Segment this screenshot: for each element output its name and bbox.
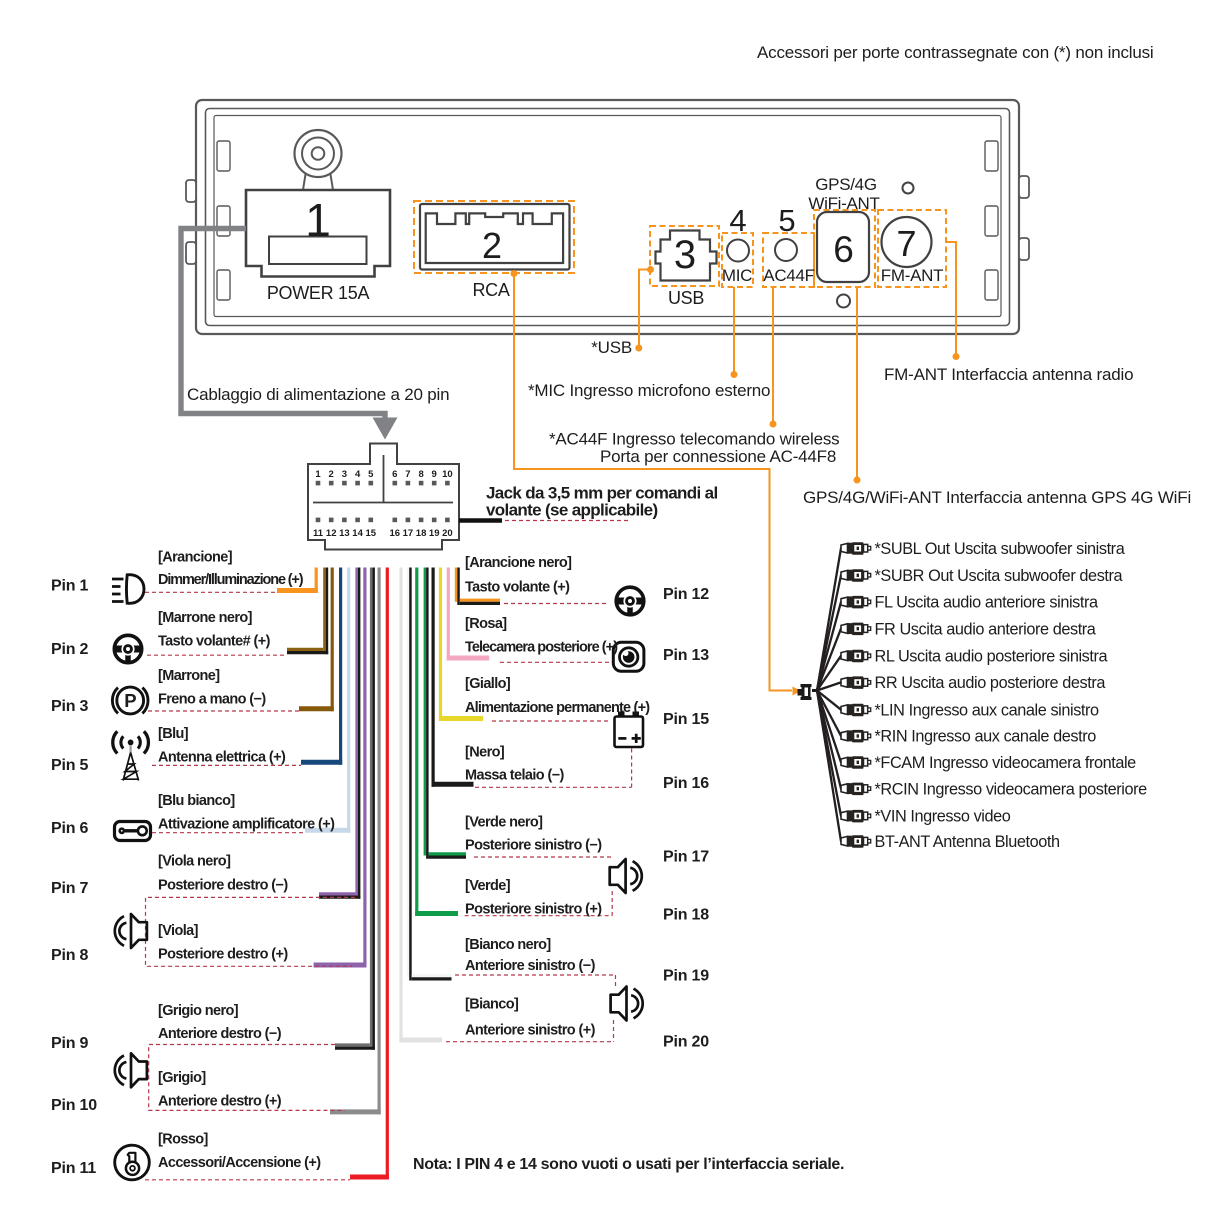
svg-text:[Blu]: [Blu]: [158, 726, 189, 742]
svg-text:14: 14: [352, 528, 363, 539]
svg-text:[Verde]: [Verde]: [465, 878, 511, 894]
svg-text:*RCIN Ingresso videocamera pos: *RCIN Ingresso videocamera posteriore: [875, 780, 1148, 798]
svg-text:12: 12: [326, 528, 337, 539]
svg-text:GPS/4G/WiFi-ANT Interfaccia an: GPS/4G/WiFi-ANT Interfaccia antenna GPS …: [803, 488, 1191, 507]
svg-text:[Arancione nero]: [Arancione nero]: [465, 555, 572, 571]
svg-text:[Grigio nero]: [Grigio nero]: [158, 1003, 239, 1019]
svg-text:Posteriore destro (+): Posteriore destro (+): [158, 947, 288, 963]
svg-text:Pin 1: Pin 1: [51, 578, 89, 595]
svg-text:Alimentazione permanente (+): Alimentazione permanente (+): [465, 700, 650, 716]
svg-text:volante (se applicabile): volante (se applicabile): [486, 501, 657, 520]
svg-text:7: 7: [896, 223, 916, 264]
svg-text:[Blu bianco]: [Blu bianco]: [158, 793, 235, 809]
svg-text:16: 16: [390, 528, 401, 539]
svg-text:Pin 7: Pin 7: [51, 880, 89, 897]
svg-text:BT-ANT Antenna Bluetooth: BT-ANT Antenna Bluetooth: [875, 833, 1060, 851]
svg-text:Tasto volante (+): Tasto volante (+): [465, 580, 570, 596]
svg-text:3: 3: [342, 469, 347, 480]
svg-text:8: 8: [418, 469, 423, 480]
svg-text:*AC44F Ingresso telecomando wi: *AC44F Ingresso telecomando wireless: [549, 430, 839, 449]
svg-text:4: 4: [355, 469, 361, 480]
svg-text:Pin 2: Pin 2: [51, 641, 89, 658]
svg-text:Pin 18: Pin 18: [663, 907, 709, 924]
svg-text:Pin 17: Pin 17: [663, 849, 709, 866]
svg-text:Pin 13: Pin 13: [663, 647, 709, 664]
svg-text:Pin 10: Pin 10: [51, 1097, 97, 1114]
svg-text:20: 20: [442, 528, 453, 539]
svg-text:Dimmer/Illuminazione (+): Dimmer/Illuminazione (+): [158, 572, 304, 588]
svg-text:[Marrone]: [Marrone]: [158, 668, 220, 684]
svg-text:Attivazione amplificatore (+): Attivazione amplificatore (+): [158, 817, 335, 833]
svg-text:*FCAM Ingresso videocamera fro: *FCAM Ingresso videocamera frontale: [875, 754, 1137, 772]
svg-text:*SUBL Out Uscita subwoofer sin: *SUBL Out Uscita subwoofer sinistra: [875, 540, 1126, 558]
svg-text:Anteriore destro (−): Anteriore destro (−): [158, 1026, 282, 1042]
svg-text:Nota: I PIN 4 e 14 sono vuoti: Nota: I PIN 4 e 14 sono vuoti o usati pe…: [413, 1156, 844, 1173]
svg-text:[Rosso]: [Rosso]: [158, 1132, 209, 1148]
svg-text:[Bianco]: [Bianco]: [465, 997, 519, 1013]
svg-text:2: 2: [329, 469, 334, 480]
svg-text:[Arancione]: [Arancione]: [158, 550, 233, 566]
svg-text:[Verde nero]: [Verde nero]: [465, 815, 543, 831]
svg-text:5: 5: [368, 469, 374, 480]
svg-text:6: 6: [833, 229, 854, 270]
svg-text:3: 3: [674, 233, 696, 277]
svg-text:[Bianco nero]: [Bianco nero]: [465, 937, 551, 953]
svg-text:Posteriore destro (−): Posteriore destro (−): [158, 878, 288, 894]
svg-text:MIC: MIC: [722, 266, 752, 285]
svg-text:*VIN Ingresso video: *VIN Ingresso video: [875, 808, 1011, 826]
svg-text:[Grigio]: [Grigio]: [158, 1070, 206, 1086]
svg-text:Anteriore sinistro (−): Anteriore sinistro (−): [465, 958, 596, 974]
svg-text:*LIN Ingresso aux canale sinis: *LIN Ingresso aux canale sinistro: [875, 702, 1100, 720]
svg-text:Pin 6: Pin 6: [51, 820, 89, 837]
svg-text:7: 7: [405, 469, 410, 480]
svg-text:Tasto volante# (+): Tasto volante# (+): [158, 634, 271, 650]
svg-text:RR Uscita audio posteriore des: RR Uscita audio posteriore destra: [875, 674, 1107, 692]
svg-text:9: 9: [432, 469, 437, 480]
svg-text:10: 10: [442, 469, 453, 480]
svg-text:17: 17: [403, 528, 414, 539]
svg-text:*USB: *USB: [591, 338, 632, 357]
svg-text:P: P: [124, 690, 136, 711]
svg-text:FL Uscita audio anteriore sini: FL Uscita audio anteriore sinistra: [875, 594, 1099, 612]
svg-text:Freno a mano (−): Freno a mano (−): [158, 692, 266, 708]
svg-text:Pin 12: Pin 12: [663, 586, 709, 603]
svg-text:USB: USB: [668, 288, 704, 308]
svg-text:1: 1: [315, 469, 321, 480]
svg-text:Pin 5: Pin 5: [51, 757, 89, 774]
svg-text:11: 11: [313, 528, 324, 539]
svg-text:Pin 15: Pin 15: [663, 711, 709, 728]
svg-text:[Viola]: [Viola]: [158, 923, 199, 939]
svg-text:*MIC Ingresso microfono estern: *MIC Ingresso microfono esterno: [528, 381, 770, 400]
svg-text:Antenna elettrica (+): Antenna elettrica (+): [158, 750, 286, 766]
svg-text:2: 2: [482, 225, 502, 266]
svg-text:*SUBR Out Uscita subwoofer des: *SUBR Out Uscita subwoofer destra: [875, 567, 1124, 585]
svg-text:GPS/4G: GPS/4G: [815, 175, 877, 194]
svg-text:Accessori/Accensione (+): Accessori/Accensione (+): [158, 1155, 321, 1171]
svg-text:Accessori per porte contrasseg: Accessori per porte contrassegnate con (…: [757, 43, 1153, 62]
svg-text:Pin 20: Pin 20: [663, 1034, 709, 1051]
svg-text:AC44F: AC44F: [763, 266, 814, 285]
svg-text:Anteriore sinistro (+): Anteriore sinistro (+): [465, 1023, 596, 1039]
svg-text:*RIN Ingresso aux canale destr: *RIN Ingresso aux canale destro: [875, 728, 1097, 746]
svg-text:Anteriore destro (+): Anteriore destro (+): [158, 1094, 282, 1110]
svg-text:FR Uscita audio anteriore dest: FR Uscita audio anteriore destra: [875, 620, 1097, 638]
svg-text:POWER 15A: POWER 15A: [267, 283, 370, 303]
svg-text:18: 18: [416, 528, 427, 539]
svg-text:[Nero]: [Nero]: [465, 745, 505, 761]
svg-text:1: 1: [305, 194, 331, 246]
svg-text:13: 13: [339, 528, 350, 539]
svg-text:Massa telaio (−): Massa telaio (−): [465, 768, 565, 784]
svg-text:19: 19: [429, 528, 440, 539]
svg-text:Posteriore sinistro (−): Posteriore sinistro (−): [465, 838, 602, 854]
svg-text:RCA: RCA: [472, 280, 509, 300]
svg-text:15: 15: [366, 528, 377, 539]
svg-text:[Marrone nero]: [Marrone nero]: [158, 610, 253, 626]
svg-text:RL Uscita audio posteriore sin: RL Uscita audio posteriore sinistra: [875, 648, 1109, 666]
svg-text:Pin 8: Pin 8: [51, 947, 89, 964]
svg-text:[Rosa]: [Rosa]: [465, 616, 507, 632]
svg-text:[Viola nero]: [Viola nero]: [158, 854, 231, 870]
svg-text:Telecamera posteriore (+): Telecamera posteriore (+): [465, 640, 618, 656]
svg-text:FM-ANT Interfaccia antenna rad: FM-ANT Interfaccia antenna radio: [884, 365, 1133, 384]
svg-text:Pin 11: Pin 11: [51, 1160, 96, 1177]
svg-text:Pin 19: Pin 19: [663, 968, 709, 985]
svg-text:FM-ANT: FM-ANT: [881, 266, 943, 285]
svg-text:Posteriore sinistro (+): Posteriore sinistro (+): [465, 902, 602, 918]
svg-text:Cablaggio di alimentazione a 2: Cablaggio di alimentazione a 20 pin: [187, 385, 449, 404]
svg-text:Porta per connessione AC-44F8: Porta per connessione AC-44F8: [600, 447, 836, 466]
svg-text:Pin 9: Pin 9: [51, 1035, 89, 1052]
svg-text:[Giallo]: [Giallo]: [465, 676, 511, 692]
svg-text:6: 6: [392, 469, 397, 480]
svg-text:Pin 3: Pin 3: [51, 698, 89, 715]
svg-text:Pin 16: Pin 16: [663, 775, 709, 792]
